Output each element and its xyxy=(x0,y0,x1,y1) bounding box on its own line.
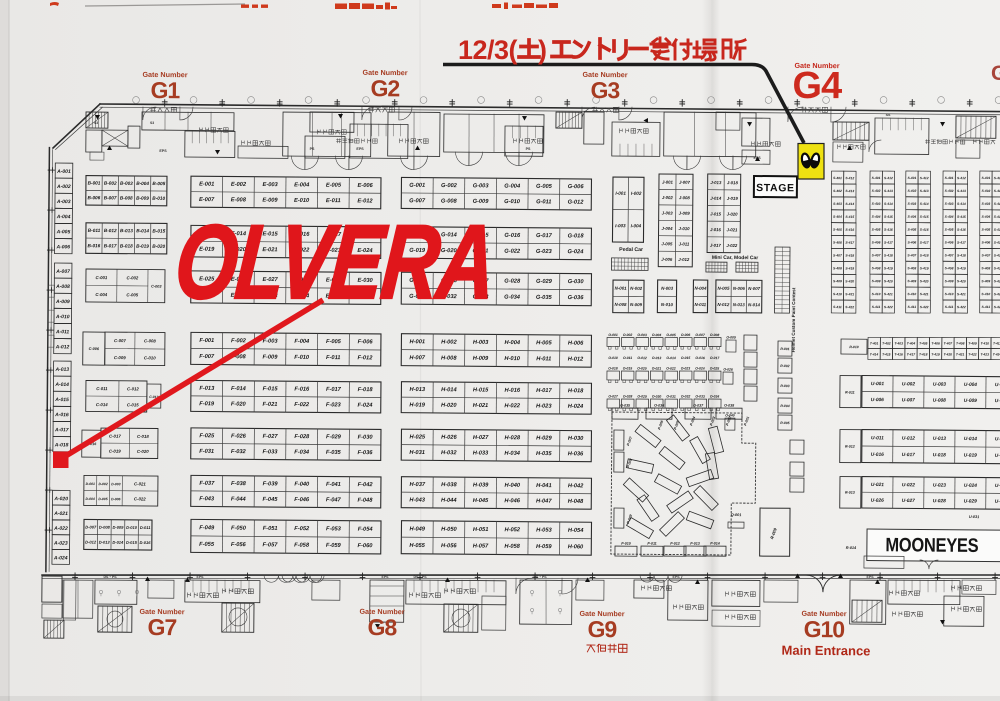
svg-text:G-018: G-018 xyxy=(568,233,585,239)
svg-text:F-058: F-058 xyxy=(294,543,310,549)
svg-text:H-023: H-023 xyxy=(536,403,552,409)
svg-text:D-015: D-015 xyxy=(126,540,138,545)
svg-text:S-410: S-410 xyxy=(833,292,842,296)
svg-text:B-015: B-015 xyxy=(152,228,165,233)
svg-text:F-028: F-028 xyxy=(294,434,310,440)
svg-text:S-415: S-415 xyxy=(957,215,966,219)
svg-text:G-002: G-002 xyxy=(441,183,458,189)
svg-text:G-006: G-006 xyxy=(568,184,585,190)
svg-text:C-012: C-012 xyxy=(127,386,139,391)
svg-text:T-404: T-404 xyxy=(907,341,916,345)
svg-text:U-024: U-024 xyxy=(964,483,977,489)
svg-text:B-017: B-017 xyxy=(104,243,117,248)
svg-text:S-407: S-407 xyxy=(907,253,916,257)
svg-text:S-421: S-421 xyxy=(957,292,966,296)
svg-text:G3: G3 xyxy=(590,77,619,103)
svg-text:B-013: B-013 xyxy=(120,228,133,233)
svg-text:N-008: N-008 xyxy=(615,302,628,307)
svg-text:S-411: S-411 xyxy=(945,305,954,309)
svg-text:F-025: F-025 xyxy=(199,433,215,439)
svg-text:S-408: S-408 xyxy=(907,266,916,270)
svg-text:O-012: O-012 xyxy=(637,356,647,360)
svg-text:S-407: S-407 xyxy=(945,253,954,257)
svg-text:U-016: U-016 xyxy=(871,452,884,458)
svg-text:Pedal Car: Pedal Car xyxy=(619,247,643,253)
svg-text:H-002: H-002 xyxy=(441,339,457,345)
svg-text:T-422: T-422 xyxy=(968,352,977,356)
svg-text:F-053: F-053 xyxy=(326,526,342,532)
svg-text:T-410: T-410 xyxy=(981,342,990,346)
svg-text:S-409: S-409 xyxy=(833,279,842,283)
svg-text:B-006: B-006 xyxy=(88,195,101,200)
svg-text:F-017: F-017 xyxy=(326,387,342,393)
svg-text:U-019: U-019 xyxy=(964,453,977,459)
svg-text:H-053: H-053 xyxy=(536,527,552,533)
svg-text:D-004: D-004 xyxy=(86,497,95,501)
svg-text:H-016: H-016 xyxy=(505,388,521,394)
svg-text:H-038: H-038 xyxy=(441,482,457,488)
svg-text:C-010: C-010 xyxy=(144,355,156,360)
svg-text:F-010: F-010 xyxy=(294,355,310,361)
svg-text:S-413: S-413 xyxy=(845,189,854,193)
svg-text:S-413: S-413 xyxy=(920,189,929,193)
svg-text:A-003: A-003 xyxy=(56,199,71,205)
svg-text:S-415: S-415 xyxy=(994,215,1000,219)
svg-text:F-059: F-059 xyxy=(326,543,342,549)
svg-text:T-407: T-407 xyxy=(944,341,953,345)
svg-text:G4: G4 xyxy=(792,65,842,107)
svg-text:U-003: U-003 xyxy=(933,382,946,388)
svg-text:U-030: U-030 xyxy=(995,499,1000,505)
svg-text:A-023: A-023 xyxy=(53,541,68,547)
svg-text:O-028: O-028 xyxy=(623,394,633,398)
svg-text:G-023: G-023 xyxy=(536,249,553,255)
svg-text:U-017: U-017 xyxy=(902,452,915,458)
svg-text:H-045: H-045 xyxy=(473,498,489,504)
svg-text:O-002: O-002 xyxy=(623,333,633,337)
svg-text:U-027: U-027 xyxy=(902,498,915,504)
svg-text:D-010: D-010 xyxy=(126,525,138,530)
svg-text:): ) xyxy=(538,35,547,65)
svg-text:S-416: S-416 xyxy=(845,228,854,232)
svg-text:G-017: G-017 xyxy=(536,233,553,239)
svg-text:I-002: I-002 xyxy=(631,191,642,196)
svg-text:PS: PS xyxy=(526,147,531,151)
svg-text:R-001: R-001 xyxy=(780,347,789,351)
svg-text:H-006: H-006 xyxy=(568,341,584,347)
svg-text:G-035: G-035 xyxy=(536,295,553,301)
svg-text:A-005: A-005 xyxy=(56,229,71,235)
svg-text:O-006: O-006 xyxy=(681,333,691,337)
svg-text:O-030: O-030 xyxy=(652,395,662,399)
svg-text:O-035: O-035 xyxy=(620,404,631,408)
svg-text:F-020: F-020 xyxy=(231,402,247,408)
svg-text:H-037: H-037 xyxy=(410,482,426,488)
svg-text:S-401: S-401 xyxy=(833,176,842,180)
svg-text:S3: S3 xyxy=(150,121,154,125)
svg-text:U-023: U-023 xyxy=(933,483,946,489)
svg-text:G-005: G-005 xyxy=(536,184,553,190)
svg-text:F-006: F-006 xyxy=(358,339,374,345)
svg-text:P-010: P-010 xyxy=(621,542,631,546)
svg-text:F-038: F-038 xyxy=(231,481,247,487)
svg-text:C-003: C-003 xyxy=(151,285,162,289)
svg-text:S-416: S-416 xyxy=(994,228,1000,232)
svg-text:EPS: EPS xyxy=(867,575,875,579)
svg-text:G1: G1 xyxy=(150,77,180,103)
svg-text:E-007: E-007 xyxy=(199,197,215,203)
svg-text:H-005: H-005 xyxy=(536,340,552,346)
svg-text:H-028: H-028 xyxy=(505,435,521,441)
svg-text:R-005: R-005 xyxy=(780,421,789,425)
svg-text:C-005: C-005 xyxy=(126,292,138,297)
svg-text:E-003: E-003 xyxy=(263,182,279,188)
svg-text:S-403: S-403 xyxy=(981,202,990,206)
svg-text:H-049: H-049 xyxy=(409,526,425,532)
svg-text:U-031: U-031 xyxy=(969,515,979,519)
svg-text:F-016: F-016 xyxy=(294,387,310,393)
svg-text:S-405: S-405 xyxy=(833,228,842,232)
svg-text:F-051: F-051 xyxy=(263,526,278,532)
svg-text:S-419: S-419 xyxy=(884,266,893,270)
svg-text:H-042: H-042 xyxy=(568,483,584,489)
svg-text:U-013: U-013 xyxy=(933,436,946,442)
svg-text:S-418: S-418 xyxy=(920,253,929,257)
svg-text:C-001: C-001 xyxy=(96,275,108,280)
svg-text:S-406: S-406 xyxy=(981,241,990,245)
svg-text:R-002: R-002 xyxy=(780,364,789,368)
svg-text:H-040: H-040 xyxy=(505,483,521,489)
svg-text:N-006: N-006 xyxy=(733,286,746,291)
svg-text:S-407: S-407 xyxy=(981,253,990,257)
svg-text:G8: G8 xyxy=(367,614,397,640)
svg-text:C-022: C-022 xyxy=(134,496,146,501)
svg-text:D-016: D-016 xyxy=(140,540,152,545)
svg-text:O-032: O-032 xyxy=(681,394,691,398)
svg-text:B-005: B-005 xyxy=(152,181,165,186)
svg-text:S3: S3 xyxy=(94,121,98,125)
svg-text:F-055: F-055 xyxy=(199,542,215,548)
svg-text:S-414: S-414 xyxy=(884,202,893,206)
svg-text:H-003: H-003 xyxy=(473,340,489,346)
svg-text:T-411: T-411 xyxy=(993,342,1000,346)
svg-text:A-001: A-001 xyxy=(56,169,71,175)
svg-text:H-004: H-004 xyxy=(505,340,521,346)
svg-text:S-401: S-401 xyxy=(872,176,881,180)
svg-text:O-016: O-016 xyxy=(695,356,705,360)
svg-text:J-011: J-011 xyxy=(679,241,690,246)
svg-text:S-410: S-410 xyxy=(872,292,881,296)
svg-text:F-039: F-039 xyxy=(263,481,279,487)
svg-text:F-060: F-060 xyxy=(358,543,374,549)
svg-text:G: G xyxy=(991,62,1000,85)
svg-text:D-007: D-007 xyxy=(85,524,97,529)
svg-text:G-016: G-016 xyxy=(504,233,521,239)
svg-text:E-004: E-004 xyxy=(294,182,310,188)
svg-text:P-012: P-012 xyxy=(670,542,680,546)
svg-text:R-010: R-010 xyxy=(849,345,858,349)
svg-text:F-001: F-001 xyxy=(199,338,214,344)
svg-text:H-043: H-043 xyxy=(409,497,425,503)
svg-text:SS: SS xyxy=(886,113,891,117)
svg-text:DS・PS: DS・PS xyxy=(103,575,117,579)
svg-text:DS・PS: DS・PS xyxy=(414,575,428,579)
svg-text:D-001: D-001 xyxy=(86,482,95,486)
svg-text:F-041: F-041 xyxy=(326,482,341,488)
svg-text:H-041: H-041 xyxy=(536,483,552,489)
svg-text:R-011: R-011 xyxy=(845,391,855,395)
svg-text:H-025: H-025 xyxy=(410,434,426,440)
svg-text:S-417: S-417 xyxy=(994,241,1000,245)
svg-text:O-005: O-005 xyxy=(666,333,676,337)
svg-text:A-016: A-016 xyxy=(54,412,69,418)
svg-text:H-022: H-022 xyxy=(504,403,520,409)
svg-text:S-403: S-403 xyxy=(945,202,954,206)
svg-text:S-411: S-411 xyxy=(908,305,917,309)
svg-text:J-013: J-013 xyxy=(710,180,722,185)
svg-text:F-021: F-021 xyxy=(263,402,278,408)
svg-text:H-050: H-050 xyxy=(441,527,457,533)
svg-text:D-012: D-012 xyxy=(85,539,97,544)
svg-text:S-403: S-403 xyxy=(907,202,916,206)
svg-text:U-025: U-025 xyxy=(995,483,1000,489)
svg-text:H-051: H-051 xyxy=(473,527,489,533)
svg-text:E-010: E-010 xyxy=(294,198,310,204)
svg-text:S-409: S-409 xyxy=(907,279,916,283)
svg-text:C-009: C-009 xyxy=(114,355,126,360)
svg-text:F-027: F-027 xyxy=(263,434,279,440)
svg-text:O-010: O-010 xyxy=(608,356,618,360)
svg-text:E-009: E-009 xyxy=(262,198,278,204)
svg-text:S-413: S-413 xyxy=(994,189,1000,193)
svg-text:H-024: H-024 xyxy=(568,404,584,410)
svg-text:C-014: C-014 xyxy=(96,402,108,407)
svg-text:D-003: D-003 xyxy=(111,482,120,486)
svg-text:D-013: D-013 xyxy=(99,540,111,545)
svg-text:T-419: T-419 xyxy=(931,352,940,356)
svg-text:S-413: S-413 xyxy=(884,189,893,193)
svg-text:O-036: O-036 xyxy=(654,404,665,408)
svg-text:S-410: S-410 xyxy=(981,292,990,296)
svg-text:U-006: U-006 xyxy=(871,397,884,403)
svg-text:F-024: F-024 xyxy=(358,403,374,409)
svg-text:H-011: H-011 xyxy=(536,356,551,362)
svg-text:B-009: B-009 xyxy=(136,196,149,201)
svg-text:H-059: H-059 xyxy=(536,544,552,550)
svg-text:F-026: F-026 xyxy=(231,434,247,440)
svg-text:F-014: F-014 xyxy=(231,386,247,392)
svg-text:S-401: S-401 xyxy=(981,176,990,180)
svg-text:S-419: S-419 xyxy=(845,266,854,270)
svg-text:N-002: N-002 xyxy=(630,286,643,291)
svg-text:F-043: F-043 xyxy=(199,496,215,502)
svg-text:S-420: S-420 xyxy=(994,279,1000,283)
svg-text:S-405: S-405 xyxy=(872,228,881,232)
svg-text:H-035: H-035 xyxy=(536,451,552,457)
svg-text:O-022: O-022 xyxy=(666,367,676,371)
svg-text:H-048: H-048 xyxy=(568,499,584,505)
svg-text:N-010: N-010 xyxy=(661,302,674,307)
svg-text:S-414: S-414 xyxy=(845,202,854,206)
svg-text:T-421: T-421 xyxy=(956,352,965,356)
svg-text:U-014: U-014 xyxy=(964,436,977,442)
svg-text:U-022: U-022 xyxy=(902,482,915,488)
svg-text:Q-001: Q-001 xyxy=(731,513,742,517)
svg-text:G-030: G-030 xyxy=(568,279,585,285)
svg-text:S-404: S-404 xyxy=(907,215,916,219)
svg-text:S-408: S-408 xyxy=(981,266,990,270)
svg-text:O-001: O-001 xyxy=(608,333,618,337)
svg-text:O-023: O-023 xyxy=(681,366,691,370)
svg-text:T-403: T-403 xyxy=(894,341,903,345)
svg-text:S-406: S-406 xyxy=(945,240,954,244)
svg-text:I-004: I-004 xyxy=(631,223,642,228)
svg-text:O-014: O-014 xyxy=(666,356,676,360)
svg-text:S-421: S-421 xyxy=(845,292,854,296)
svg-text:S-419: S-419 xyxy=(957,266,966,270)
svg-text:O-029: O-029 xyxy=(637,395,647,399)
svg-text:F-036: F-036 xyxy=(358,450,374,456)
svg-text:O-013: O-013 xyxy=(652,356,662,360)
svg-text:E-001: E-001 xyxy=(199,182,214,188)
svg-text:G-028: G-028 xyxy=(504,279,521,285)
svg-text:S-404: S-404 xyxy=(945,215,954,219)
svg-text:A-011: A-011 xyxy=(55,329,70,335)
svg-text:F-023: F-023 xyxy=(326,402,342,408)
svg-text:S-422: S-422 xyxy=(845,305,854,309)
svg-text:S-403: S-403 xyxy=(833,202,842,206)
svg-text:A-009: A-009 xyxy=(55,299,70,305)
svg-text:H-019: H-019 xyxy=(409,402,425,408)
svg-text:G-012: G-012 xyxy=(568,200,585,206)
svg-text:J-020: J-020 xyxy=(727,212,739,217)
svg-text:H-060: H-060 xyxy=(568,544,584,550)
svg-text:R-003: R-003 xyxy=(780,384,789,388)
svg-text:H-032: H-032 xyxy=(441,450,457,456)
svg-text:S-409: S-409 xyxy=(981,279,990,283)
svg-text:H-047: H-047 xyxy=(536,498,552,504)
svg-text:F-019: F-019 xyxy=(199,401,215,407)
svg-text:S-404: S-404 xyxy=(833,215,842,219)
svg-text:S-406: S-406 xyxy=(907,240,916,244)
svg-text:T-417: T-417 xyxy=(907,352,916,356)
svg-text:H-036: H-036 xyxy=(568,451,584,457)
svg-text:B-014: B-014 xyxy=(136,228,149,233)
svg-text:O-018: O-018 xyxy=(608,366,618,370)
svg-text:S-414: S-414 xyxy=(994,202,1000,206)
svg-text:S-405: S-405 xyxy=(907,228,916,232)
svg-text:H-054: H-054 xyxy=(568,528,584,534)
svg-text:B-004: B-004 xyxy=(136,181,149,186)
svg-text:N-013: N-013 xyxy=(733,302,746,307)
svg-text:A-006: A-006 xyxy=(55,244,70,250)
svg-text:A-010: A-010 xyxy=(55,314,70,320)
svg-text:A-008: A-008 xyxy=(55,284,70,290)
svg-text:OLVERA: OLVERA xyxy=(171,204,499,321)
svg-text:F-018: F-018 xyxy=(358,387,374,393)
svg-text:F-004: F-004 xyxy=(294,339,310,345)
svg-text:F-057: F-057 xyxy=(263,542,279,548)
svg-text:O-020: O-020 xyxy=(637,367,647,371)
svg-text:S-419: S-419 xyxy=(920,266,929,270)
svg-text:G-022: G-022 xyxy=(504,249,521,255)
svg-text:F-050: F-050 xyxy=(231,526,247,532)
svg-text:H-044: H-044 xyxy=(441,498,457,504)
svg-text:C-002: C-002 xyxy=(127,275,139,280)
svg-text:U-029: U-029 xyxy=(964,498,977,504)
svg-text:S-409: S-409 xyxy=(872,279,881,283)
svg-text:F-052: F-052 xyxy=(294,526,310,532)
svg-text:R-014: R-014 xyxy=(846,546,857,550)
svg-text:S-404: S-404 xyxy=(981,215,990,219)
svg-text:S-418: S-418 xyxy=(884,253,893,257)
svg-text:U-005: U-005 xyxy=(995,382,1000,388)
svg-text:G-004: G-004 xyxy=(504,183,521,189)
svg-text:T-408: T-408 xyxy=(956,341,965,345)
svg-text:S-413: S-413 xyxy=(957,189,966,193)
svg-text:O-003: O-003 xyxy=(637,333,647,337)
svg-text:S-411: S-411 xyxy=(982,305,991,309)
svg-text:H-027: H-027 xyxy=(473,435,489,441)
svg-text:N-007: N-007 xyxy=(748,286,761,291)
svg-text:H-008: H-008 xyxy=(441,355,457,361)
svg-text:S-404: S-404 xyxy=(872,215,881,219)
svg-text:G-003: G-003 xyxy=(473,183,490,189)
svg-text:B-007: B-007 xyxy=(104,195,117,200)
svg-text:T-418: T-418 xyxy=(919,352,928,356)
svg-text:G7: G7 xyxy=(147,614,176,640)
svg-text:H-029: H-029 xyxy=(536,435,552,441)
svg-text:E-008: E-008 xyxy=(231,197,247,203)
svg-text:S-417: S-417 xyxy=(845,241,854,245)
svg-text:S-422: S-422 xyxy=(994,305,1000,309)
svg-text:F-013: F-013 xyxy=(199,386,215,392)
svg-text:A-012: A-012 xyxy=(55,344,70,350)
svg-text:H-026: H-026 xyxy=(441,435,457,441)
svg-text:S-408: S-408 xyxy=(872,266,881,270)
svg-text:F-012: F-012 xyxy=(358,355,374,361)
svg-text:B-008: B-008 xyxy=(120,195,133,200)
svg-text:F-048: F-048 xyxy=(358,498,374,504)
svg-text:B-001: B-001 xyxy=(88,180,101,185)
svg-text:EPS: EPS xyxy=(197,575,205,579)
svg-text:H-015: H-015 xyxy=(473,387,489,393)
svg-text:C-006: C-006 xyxy=(89,347,100,351)
svg-text:O-027: O-027 xyxy=(608,394,619,398)
svg-text:H-021: H-021 xyxy=(473,403,489,409)
svg-text:S-402: S-402 xyxy=(907,189,916,193)
svg-text:J-021: J-021 xyxy=(726,227,738,232)
svg-text:J-017: J-017 xyxy=(710,243,722,248)
svg-text:S-418: S-418 xyxy=(957,253,966,257)
svg-text:S-420: S-420 xyxy=(884,279,893,283)
svg-text:T-409: T-409 xyxy=(968,341,977,345)
svg-text:H-010: H-010 xyxy=(504,356,520,362)
svg-text:F-046: F-046 xyxy=(294,497,310,503)
svg-text:H-009: H-009 xyxy=(473,356,489,362)
svg-text:H-039: H-039 xyxy=(473,482,489,488)
svg-text:O-015: O-015 xyxy=(681,356,691,360)
svg-text:T-423: T-423 xyxy=(980,353,989,357)
svg-text:EPS: EPS xyxy=(673,575,681,579)
svg-text:C-011: C-011 xyxy=(96,386,108,391)
svg-text:F-015: F-015 xyxy=(263,386,279,392)
svg-text:S-418: S-418 xyxy=(994,254,1000,258)
svg-text:S-414: S-414 xyxy=(957,202,966,206)
svg-text:G9: G9 xyxy=(587,616,616,642)
svg-text:G2: G2 xyxy=(370,75,399,101)
svg-text:A-017: A-017 xyxy=(54,427,69,433)
